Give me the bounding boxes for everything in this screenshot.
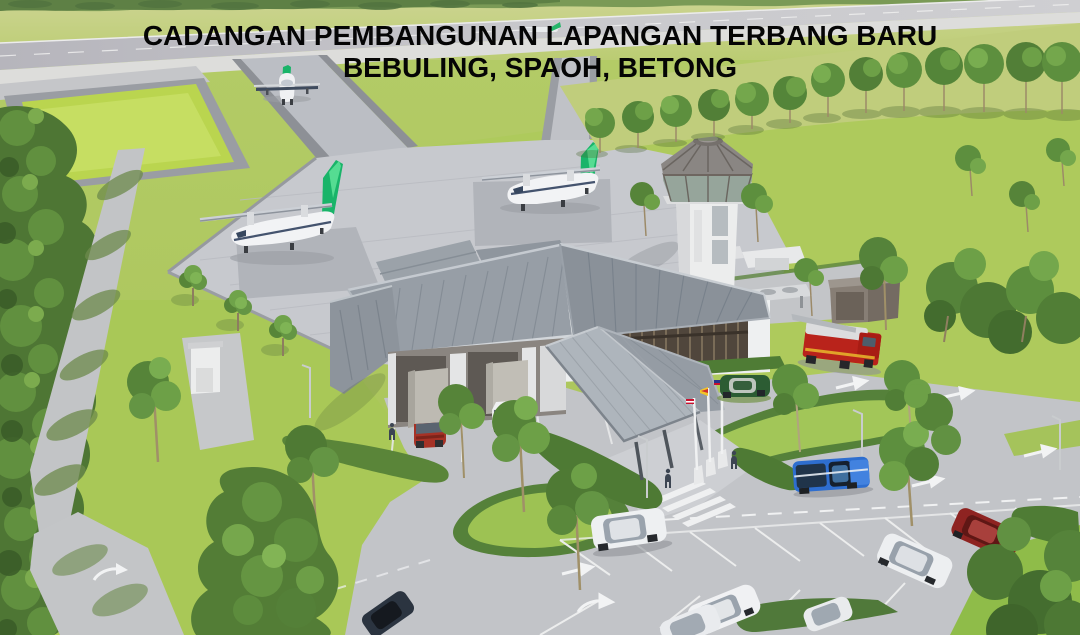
svg-text:CADANGAN PEMBANGUNAN LAPANGAN: CADANGAN PEMBANGUNAN LAPANGAN TERBANG BA… <box>143 20 937 51</box>
svg-text:BEBULING, SPAOH, BETONG: BEBULING, SPAOH, BETONG <box>343 52 737 83</box>
